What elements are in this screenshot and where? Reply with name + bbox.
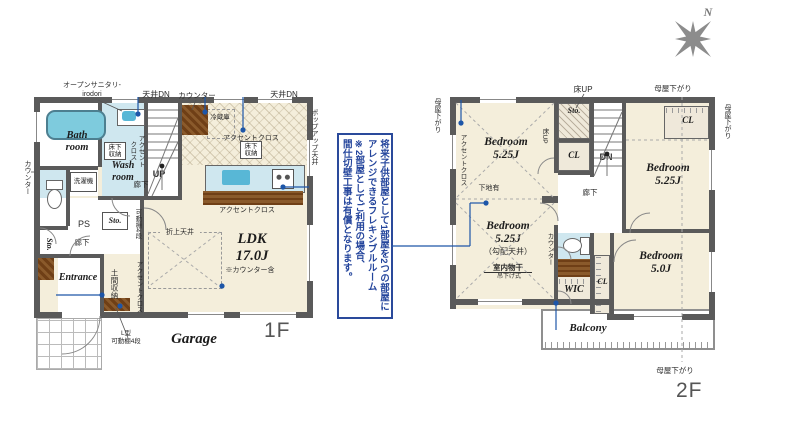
shitaji-label: 下地有 <box>472 185 506 194</box>
moya-n-label: 母屋下がり <box>648 84 698 93</box>
window <box>450 225 456 265</box>
hall-label-2: 廊下 <box>68 238 96 247</box>
wall <box>554 103 558 173</box>
wall <box>590 233 594 314</box>
wall <box>610 233 614 314</box>
wic-name: WIC <box>560 284 588 296</box>
floor1-label: 1F <box>264 319 291 343</box>
bedroom-se-name: Bedroom 5.0J <box>630 250 692 276</box>
balcony-name: Balcony <box>556 322 620 335</box>
movable-shelf-label: 可動棚4段 <box>131 204 141 244</box>
compass-north-label: N <box>700 6 716 20</box>
hall-label-1: 廊下 <box>128 180 154 189</box>
hall-label-2f: 廊下 <box>576 188 604 197</box>
coffered-ceiling-outline <box>148 232 222 289</box>
accent-cloth-kitchen-label: アクセントクロス <box>222 135 280 144</box>
accent-cloth-bed-nw-label: アクセントクロス <box>456 128 466 192</box>
bedroom-sw-note: （勾配天井） <box>474 247 542 257</box>
ufs-wash-label: 床下 収納 <box>109 144 122 158</box>
wall <box>622 103 626 233</box>
ldk-note: ※カウンター含 <box>218 267 282 276</box>
wall <box>558 139 590 142</box>
doma-storage-label: 土間収納 <box>108 261 119 307</box>
moya-s-label: 母屋下がり <box>650 366 700 375</box>
closet-ne-name: CL <box>678 115 698 125</box>
sto-hall-label: Sto. <box>109 217 122 226</box>
wall <box>178 103 182 196</box>
kitchen-sink <box>222 170 250 185</box>
floor-up-top-label: 床UP <box>566 85 600 95</box>
balcony-railing <box>545 342 711 348</box>
stairs-2f-floor <box>594 103 622 177</box>
note-line-1: 将来子供部屋として1部屋を2つの部屋に <box>377 139 389 313</box>
compass-icon <box>675 21 711 57</box>
garage-opening <box>188 312 224 318</box>
floor-up-door-label: 床UP <box>538 122 548 150</box>
counter-wood-block <box>180 105 208 135</box>
counter-2f-label: カウンター <box>543 226 553 272</box>
sanitary-basin <box>122 111 136 121</box>
bedroom-nw-name: Bedroom 5.25J <box>470 136 542 162</box>
storage-hall: Sto. <box>102 212 128 230</box>
wall <box>590 103 594 177</box>
shelf-wood-left <box>38 258 54 280</box>
window <box>214 97 244 103</box>
counter-wood-2f <box>558 259 590 277</box>
window <box>709 252 715 292</box>
counter-left-label: カウンター <box>20 156 31 198</box>
entrance-name: Entrance <box>55 272 101 284</box>
moya-e-label: 母屋下がり <box>720 94 731 148</box>
floor-plan-page: 洗濯機 床下 収納 床下 収納 Sto. Bath room Wash room… <box>0 0 786 426</box>
accent-cloth-wash-label: アクセント クロス <box>126 131 144 171</box>
window <box>480 97 516 103</box>
ceiling-dn-right-label: 天井DN <box>266 90 302 100</box>
closet-center-name: CL <box>564 150 584 160</box>
floor2-label: 2F <box>676 379 703 403</box>
up-label: UP <box>148 169 170 180</box>
wall <box>450 299 610 305</box>
dn-label: DN <box>596 152 616 163</box>
storage-left-name: Sto. <box>42 232 54 256</box>
note-line-2: アレンジできるフレキシブルルーム <box>364 139 376 313</box>
note-line-4: 間仕切壁工事は有償となります。 <box>339 139 351 313</box>
bath-room-name: Bath room <box>52 130 102 154</box>
stove <box>272 169 294 189</box>
ufs-kitchen-label: 床下 収納 <box>245 143 258 157</box>
window <box>307 225 313 281</box>
counter-top-label: カウンター <box>176 91 218 100</box>
partition-stub <box>542 196 558 203</box>
garage-opening <box>240 312 296 318</box>
wall <box>626 229 709 233</box>
ceiling-dn-left-label: 天井DN <box>140 90 172 100</box>
laundry-sub-label: 吊下げ式 <box>492 274 526 282</box>
kitchen-counter-wood <box>203 191 303 205</box>
window <box>709 150 715 190</box>
wall <box>554 225 558 305</box>
window <box>634 314 682 320</box>
bedroom-sw-name: Bedroom 5.25J <box>472 220 544 246</box>
moya-nw-label: 母屋下がり <box>430 88 441 142</box>
hall-floor-2f <box>558 173 622 233</box>
accent-cloth-doma-label: アクセントクロス <box>132 258 142 316</box>
laundry-label: 室内物干 <box>484 263 532 273</box>
entrance-porch-tiles <box>36 318 102 370</box>
bedroom-ne-name: Bedroom 5.25J <box>636 162 700 188</box>
l-shelf-label: L型 可動棚4段 <box>104 330 148 346</box>
washer-box: 洗濯機 <box>70 172 97 192</box>
entrance-floor <box>58 258 100 312</box>
popup-ceiling-label: ポップアップ天井 <box>307 104 318 170</box>
garage-name: Garage <box>166 331 222 348</box>
closet-se-name: CL <box>595 277 610 286</box>
closet-ne-hangers <box>666 108 707 113</box>
window <box>34 112 40 142</box>
wall <box>40 226 68 230</box>
washer-label: 洗濯機 <box>74 178 94 185</box>
fridge-label: 冷蔵庫 <box>207 114 233 122</box>
underfloor-storage-wash: 床下 収納 <box>104 142 126 160</box>
note-line-3: ※2部屋としてご利用の場合、 <box>352 139 364 313</box>
coffered-ceiling-label: 折上天井 <box>160 229 200 238</box>
flexible-room-note: 将来子供部屋として1部屋を2つの部屋に アレンジできるフレキシブルルーム ※2部… <box>337 133 393 319</box>
open-sanitary-label: オープンサニタリ- irodori <box>62 82 122 100</box>
accent-cloth-counter-label: アクセントクロス <box>218 207 276 216</box>
toilet-bowl-2f <box>563 238 582 253</box>
wall <box>558 171 590 175</box>
ldk-name: LDK 17.0J <box>226 231 278 264</box>
window <box>478 299 522 305</box>
toilet-bowl-1f <box>47 189 62 209</box>
ps-label: PS <box>74 219 94 230</box>
storage-2f-name: Sto. <box>564 106 584 115</box>
